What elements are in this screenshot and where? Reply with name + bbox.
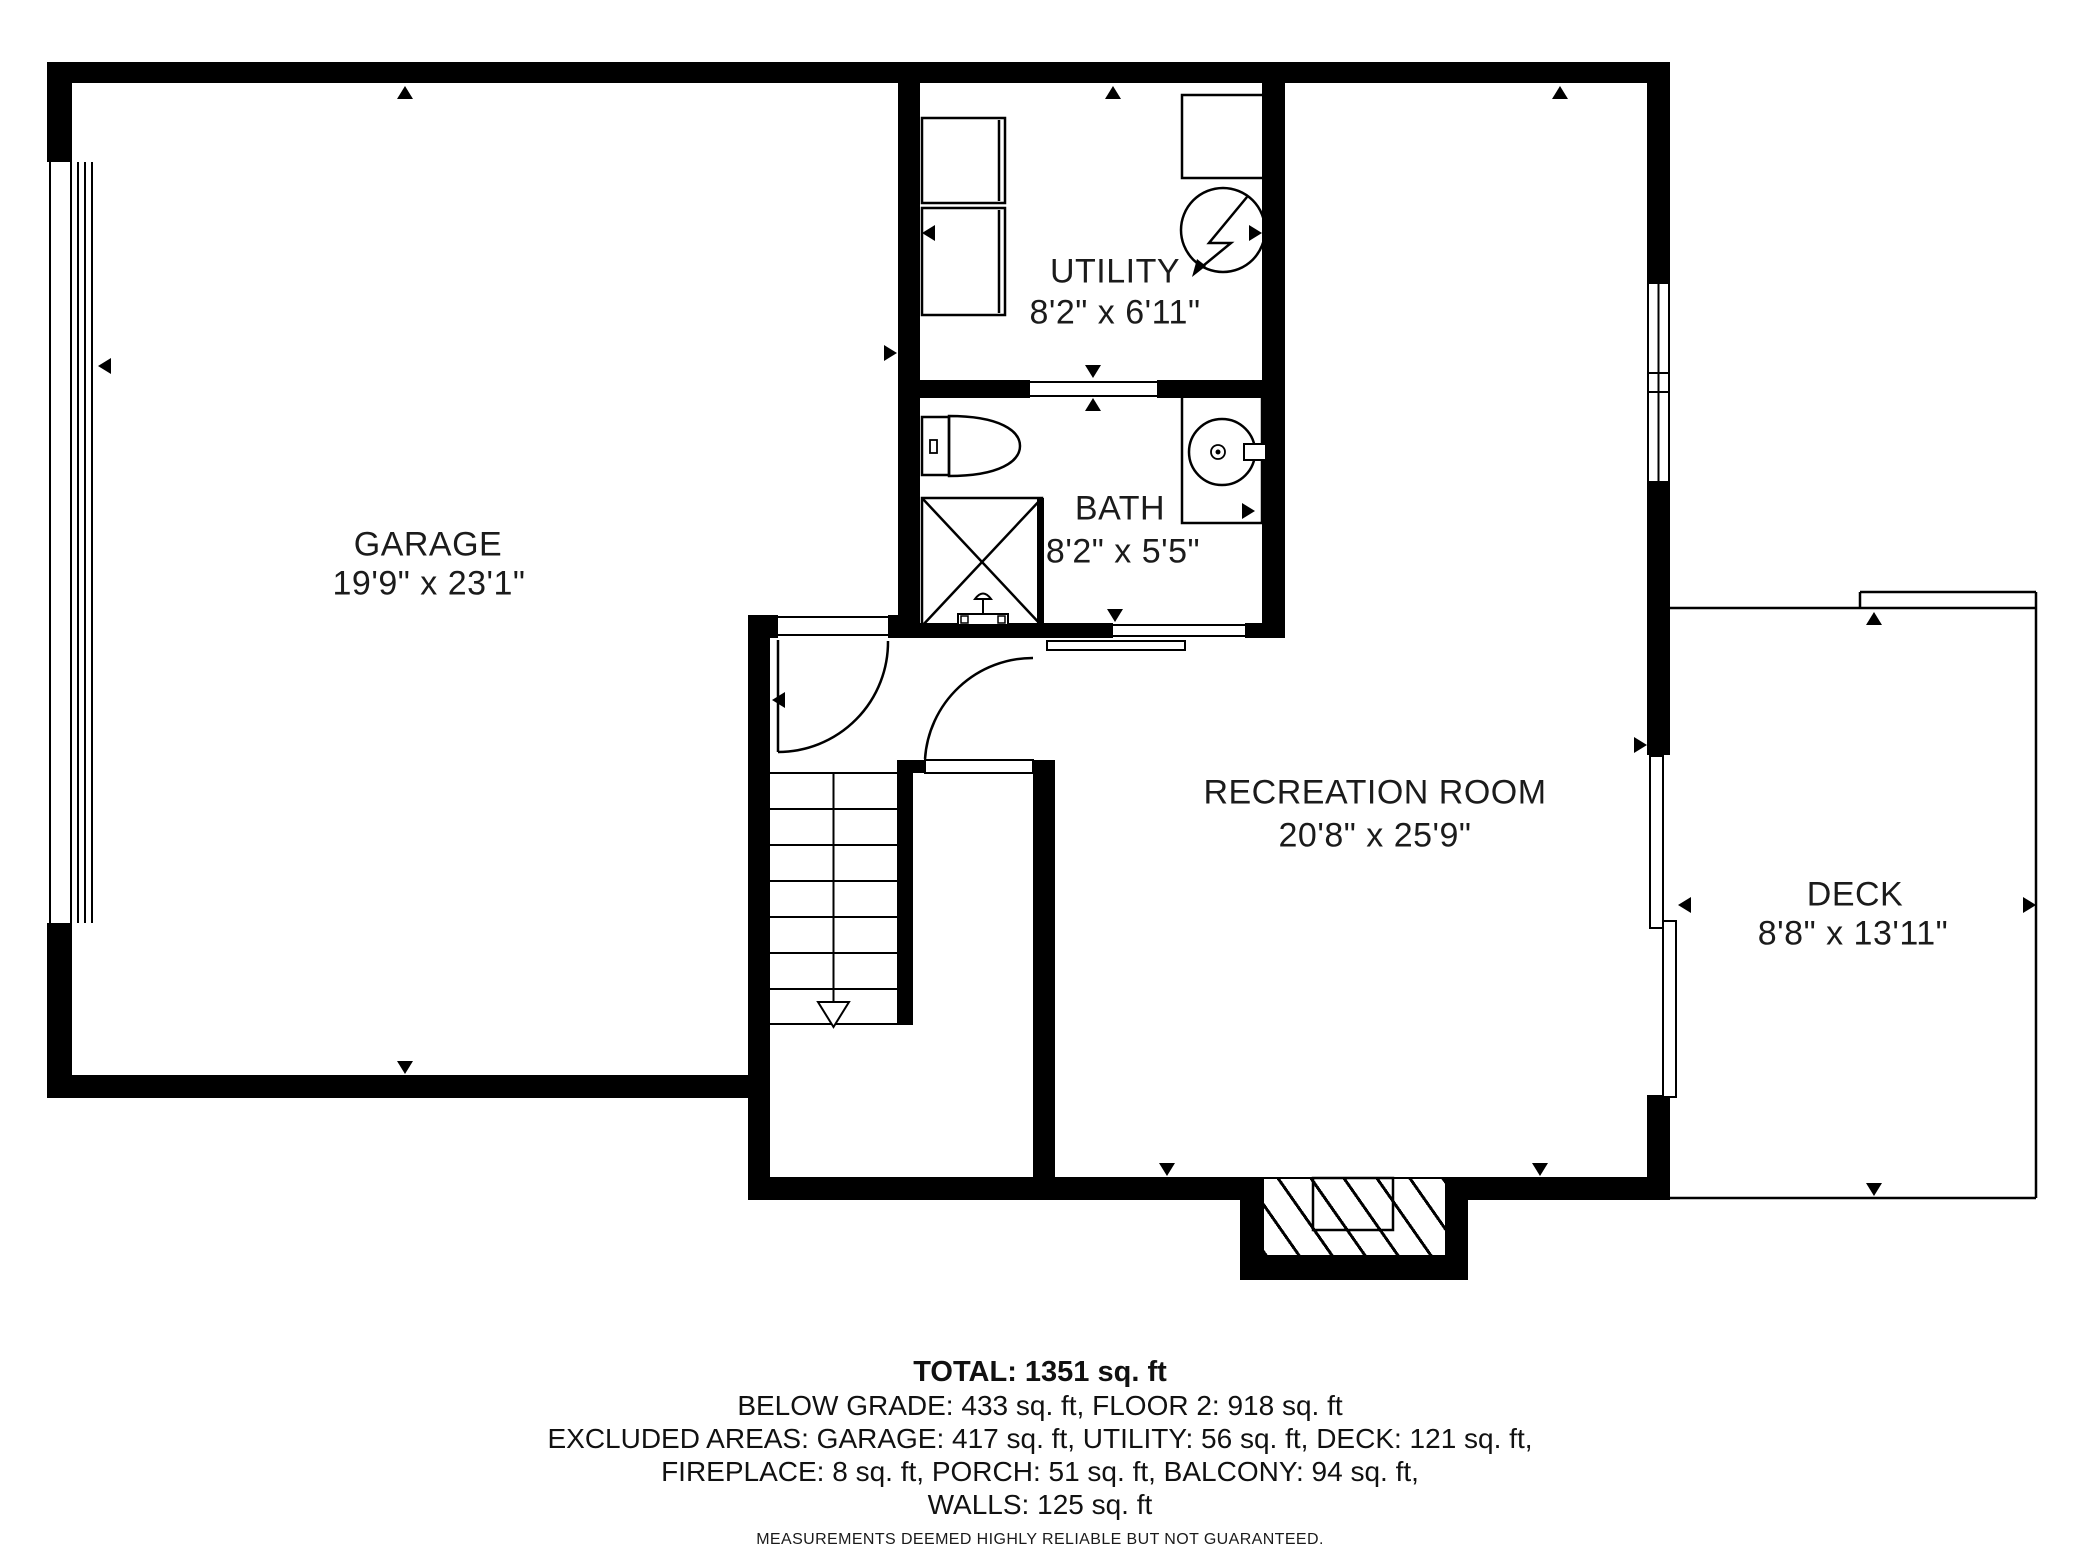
utility-room-label: UTILITY <box>1050 253 1180 292</box>
garage-room-label: GARAGE <box>354 526 502 565</box>
garage-hall-door-swing <box>778 640 888 752</box>
bath-room-label: BATH <box>1075 490 1165 529</box>
toilet-icon <box>922 416 1020 476</box>
marker-top-garage-icon <box>397 86 413 99</box>
marker-deck-top-icon <box>1866 612 1882 625</box>
furnace-icon <box>1182 95 1265 178</box>
marker-bath-sink-icon <box>1242 503 1255 519</box>
marker-utility-door-icon <box>1085 365 1101 378</box>
marker-hall-left-icon <box>772 692 785 708</box>
corridor-door-swing <box>925 658 1033 773</box>
recreation-room-dims: 20'8" x 25'9" <box>1279 817 1472 856</box>
below-grade-text: BELOW GRADE: 433 sq. ft, FLOOR 2: 918 sq… <box>0 1389 2080 1422</box>
fireplace-firebox <box>1313 1178 1393 1230</box>
marker-utility-right-icon <box>1249 225 1262 241</box>
area-summary: TOTAL: 1351 sq. ft BELOW GRADE: 433 sq. … <box>0 1356 2080 1549</box>
marker-garage-left-icon <box>98 358 111 374</box>
pocket-door-icon <box>1047 641 1185 650</box>
sliding-door-icon <box>1650 756 1676 1097</box>
marker-rec-bottom2-icon <box>1532 1163 1548 1176</box>
marker-utility-left-icon <box>922 225 935 241</box>
window-icon <box>1648 283 1669 482</box>
shower-icon <box>922 498 1044 626</box>
marker-garage-right-icon <box>884 345 897 361</box>
floor-plan: GARAGE 19'9" x 23'1" UTILITY 8'2" x 6'11… <box>0 0 2080 1560</box>
excluded-areas-text: EXCLUDED AREAS: GARAGE: 417 sq. ft, UTIL… <box>0 1422 2080 1455</box>
recreation-room-label: RECREATION ROOM <box>1203 774 1546 813</box>
deck-room-dims: 8'8" x 13'11" <box>1758 915 1948 954</box>
marker-top-rec-icon <box>1552 86 1568 99</box>
marker-rec-bottom1-icon <box>1159 1163 1175 1176</box>
deck-room-label: DECK <box>1807 876 1903 915</box>
marker-rec-right-icon <box>1634 737 1647 753</box>
garage-room-dims: 19'9" x 23'1" <box>333 565 526 604</box>
marker-top-utility-icon <box>1105 86 1121 99</box>
excluded-areas-text-2: FIREPLACE: 8 sq. ft, PORCH: 51 sq. ft, B… <box>0 1455 2080 1488</box>
bath-room-dims: 8'2" x 5'5" <box>1046 533 1200 572</box>
walls-area-text: WALLS: 125 sq. ft <box>0 1488 2080 1521</box>
disclaimer-text: MEASUREMENTS DEEMED HIGHLY RELIABLE BUT … <box>0 1531 2080 1549</box>
shower-valve-icon <box>958 594 1008 626</box>
utility-room-dims: 8'2" x 6'11" <box>1029 294 1200 333</box>
marker-bath-door-top-icon <box>1085 398 1101 411</box>
marker-garage-bottom-icon <box>397 1061 413 1074</box>
marker-deck-left-icon <box>1678 897 1691 913</box>
marker-deck-bottom-icon <box>1866 1183 1882 1196</box>
marker-bath-exit-icon <box>1107 609 1123 622</box>
washer-icon <box>922 118 1005 203</box>
fixtures-layer <box>0 0 2080 1560</box>
marker-deck-right-icon <box>2023 897 2036 913</box>
staircase <box>770 773 897 1027</box>
total-area-text: TOTAL: 1351 sq. ft <box>0 1356 2080 1389</box>
